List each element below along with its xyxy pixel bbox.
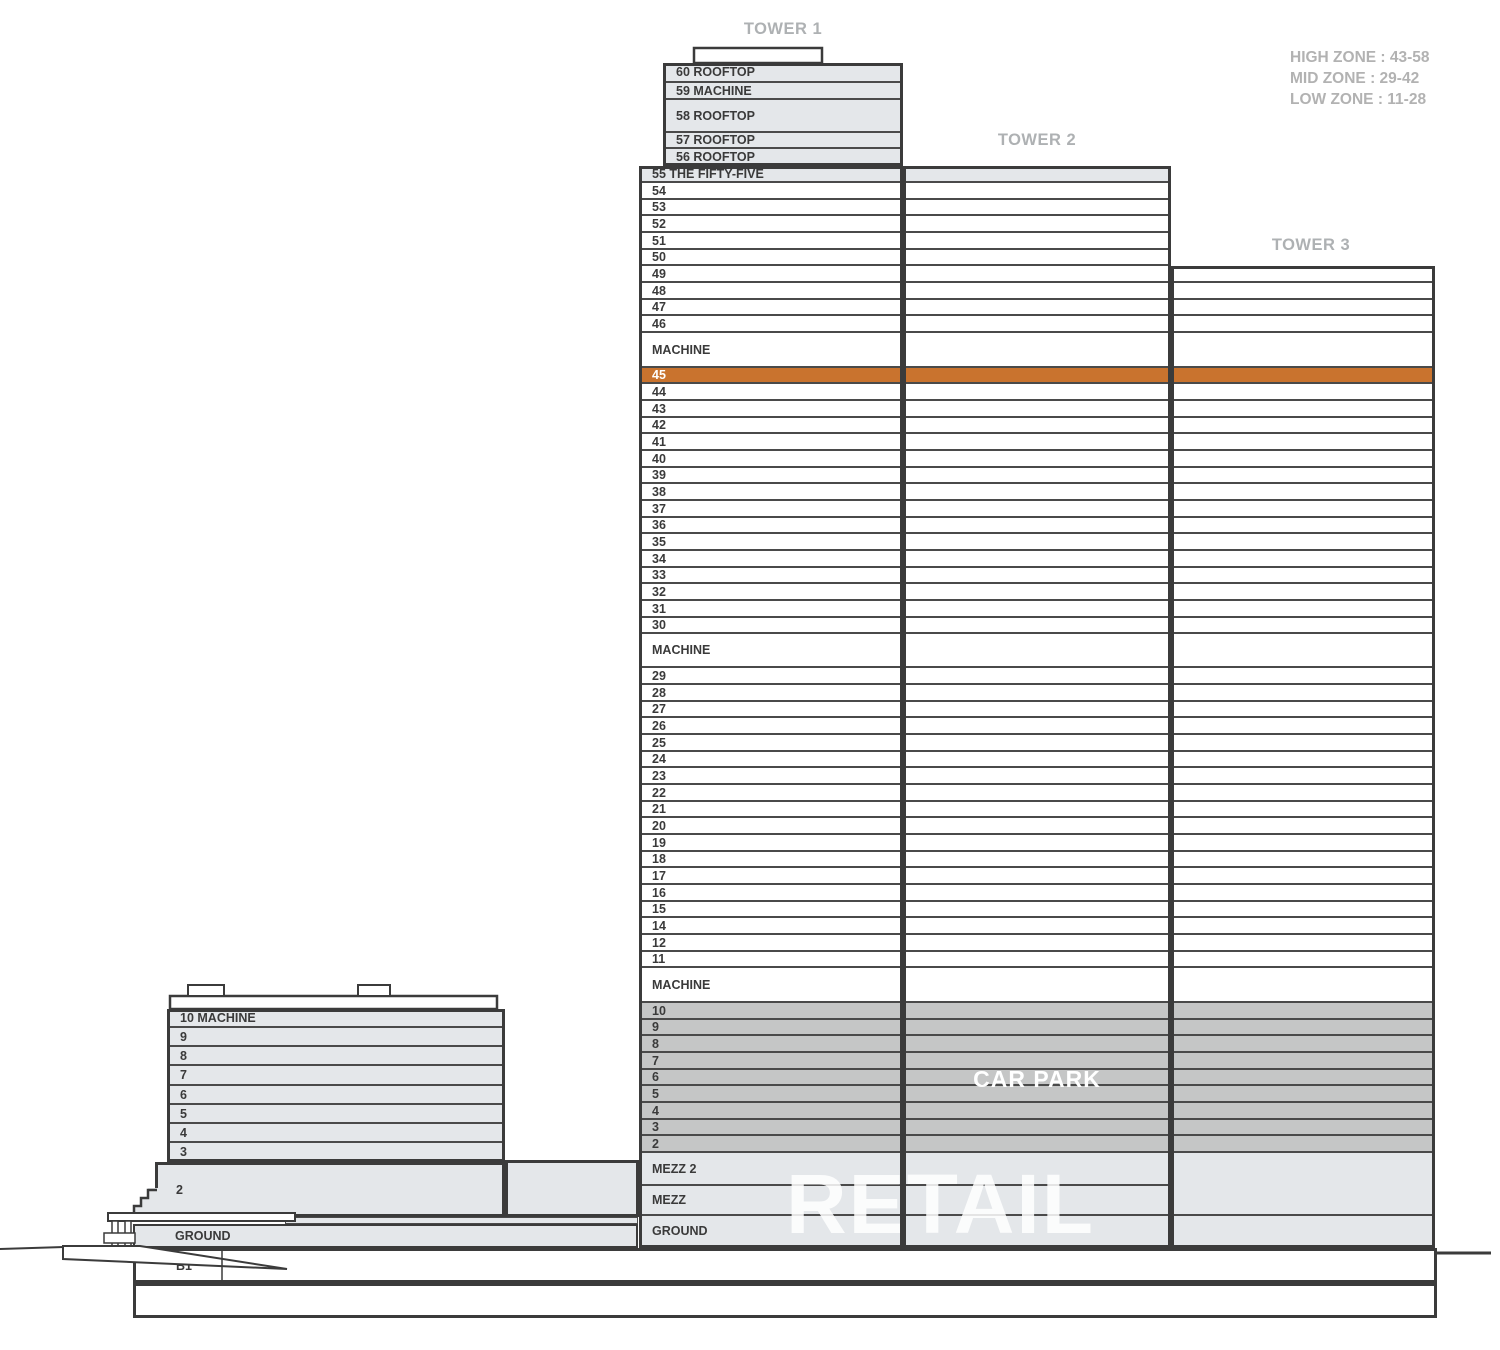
floor-cell-t1-15: 15 [639, 902, 903, 918]
floor-cell-t1-18: 18 [639, 852, 903, 868]
podium-cell-6: 6 [167, 1086, 505, 1105]
floor-label: 51 [639, 234, 666, 248]
floor-cell-t3-48 [1171, 283, 1435, 300]
floor-cell-t2-10 [903, 1003, 1171, 1020]
floor-label: 50 [639, 250, 666, 264]
floor-label: 25 [639, 736, 666, 750]
floor-label: 49 [639, 267, 666, 281]
floor-cell-t2-27 [903, 702, 1171, 718]
floor-cell-t3-24 [1171, 752, 1435, 768]
podium-cell-3: 3 [167, 1143, 505, 1162]
floor-label: 23 [639, 769, 666, 783]
floor-cell-t3-machine [1171, 968, 1435, 1003]
floor-cell-t3-25 [1171, 735, 1435, 752]
floor-label: 21 [639, 802, 666, 816]
floor-label: GROUND [639, 1224, 708, 1238]
floor-cell-t2-35 [903, 534, 1171, 551]
floor-cell-t3-14 [1171, 918, 1435, 935]
floor-cell-t1-21: 21 [639, 802, 903, 818]
floor-label: 3 [167, 1145, 187, 1159]
floor-cell-t3-31 [1171, 601, 1435, 618]
tower1-parapet [694, 48, 822, 63]
floor-label: 46 [639, 317, 666, 331]
floor-cell-t1-39: 39 [639, 468, 903, 484]
floor-label: 27 [639, 702, 666, 716]
floor-cell-t3-27 [1171, 702, 1435, 718]
floor-label: 47 [639, 300, 666, 314]
floor-cell-t2-34 [903, 551, 1171, 568]
floor-label: 14 [639, 919, 666, 933]
floor-cell-t2-46 [903, 316, 1171, 333]
floor-cell-t1-28: 28 [639, 685, 903, 702]
floor-cell-t1u-59-machine: 59 MACHINE [663, 83, 903, 100]
floor-cell-t1-45: 45 [639, 368, 903, 384]
floor-label: 5 [639, 1087, 659, 1101]
floor-cell-t2-37 [903, 501, 1171, 518]
floor-cell-t1-machine: MACHINE [639, 634, 903, 668]
floor-cell-t1-54: 54 [639, 183, 903, 200]
floor-cell-t1-26: 26 [639, 718, 903, 735]
floor-label: 24 [639, 752, 666, 766]
floor-label: 8 [639, 1037, 659, 1051]
floor-label: 40 [639, 452, 666, 466]
floor-cell-t3-16 [1171, 885, 1435, 902]
floor-label: 16 [639, 886, 666, 900]
floor-cell-t2-42 [903, 418, 1171, 434]
floor-cell-t3-2 [1171, 1136, 1435, 1153]
floor-label: 10 [639, 1004, 666, 1018]
floor-label: MACHINE [639, 978, 710, 992]
floor-cell-t3-40 [1171, 451, 1435, 468]
floor-cell-t2-25 [903, 735, 1171, 752]
floor-label: 17 [639, 869, 666, 883]
floor-cell-t1-40: 40 [639, 451, 903, 468]
floor-cell-t3-35 [1171, 534, 1435, 551]
floor-label: 4 [167, 1126, 187, 1140]
podium-cell-4: 4 [167, 1124, 505, 1143]
floor-cell-t2-15 [903, 902, 1171, 918]
floor-label: MACHINE [639, 643, 710, 657]
entrance-stair [104, 1233, 135, 1243]
podium-floor2-steps [134, 1190, 157, 1216]
floor-cell-t3-11 [1171, 952, 1435, 968]
floor-label: MACHINE [639, 343, 710, 357]
floor-cell-t1-52: 52 [639, 216, 903, 233]
floor-cell-t3-15 [1171, 902, 1435, 918]
floor-cell-t1-31: 31 [639, 601, 903, 618]
floor-label: 3 [639, 1120, 659, 1134]
floor-cell-t2-11 [903, 952, 1171, 968]
floor-cell-t2-48 [903, 283, 1171, 300]
floor-cell-t1-48: 48 [639, 283, 903, 300]
car-park-label: CAR PARK [903, 1066, 1171, 1086]
floor-cell-t1u-56-rooftop: 56 ROOFTOP [663, 149, 903, 166]
floor-cell-t2-44 [903, 384, 1171, 401]
floor-label: 28 [639, 686, 666, 700]
floor-cell-t2-55-the-fifty-five [903, 166, 1171, 183]
floor-cell-t2-29 [903, 668, 1171, 685]
podium-floor2: 2 [155, 1162, 505, 1217]
floor-cell-t2-49 [903, 266, 1171, 283]
legend-low-zone: LOW ZONE : 11-28 [1290, 89, 1430, 110]
floor-cell-t1-51: 51 [639, 233, 903, 250]
podium-slab-strip [285, 1217, 638, 1224]
floor-cell-t3-21 [1171, 802, 1435, 818]
floor-label: 26 [639, 719, 666, 733]
floor-cell-t2-39 [903, 468, 1171, 484]
floor-label: 53 [639, 200, 666, 214]
floor-cell-t3-45 [1171, 368, 1435, 384]
floor-cell-t3-18 [1171, 852, 1435, 868]
floor-label: 19 [639, 836, 666, 850]
floor-cell-t2-12 [903, 935, 1171, 952]
floor-cell-t2-38 [903, 484, 1171, 501]
floor-label: 42 [639, 418, 666, 432]
floor-cell-t3-49 [1171, 266, 1435, 283]
canopy-column-right [125, 1221, 131, 1248]
floor-label: 22 [639, 786, 666, 800]
floor-cell-t3-5 [1171, 1086, 1435, 1103]
floor-cell-t1u-57-rooftop: 57 ROOFTOP [663, 133, 903, 149]
floor-cell-t1-43: 43 [639, 401, 903, 418]
floor-cell-t1-33: 33 [639, 568, 903, 584]
floor-cell-t2-17 [903, 868, 1171, 885]
floor-cell-t2-41 [903, 434, 1171, 451]
floor-label: MEZZ 2 [639, 1162, 696, 1176]
floor-cell-t2-2 [903, 1136, 1171, 1153]
floor-cell-t1-16: 16 [639, 885, 903, 902]
floor-cell-t3-6 [1171, 1070, 1435, 1086]
floor-cell-t3-mezz-2 [1171, 1153, 1435, 1216]
floor-cell-t3-19 [1171, 835, 1435, 852]
floor-cell-t1-20: 20 [639, 818, 903, 835]
floor-cell-t3-8 [1171, 1036, 1435, 1053]
floor-cell-t2-24 [903, 752, 1171, 768]
floor-cell-t2-53 [903, 200, 1171, 216]
floor-label: 6 [167, 1088, 187, 1102]
floor-cell-t2-21 [903, 802, 1171, 818]
floor-cell-t2-28 [903, 685, 1171, 702]
floor-cell-t1-25: 25 [639, 735, 903, 752]
floor-cell-t2-47 [903, 300, 1171, 316]
floor-cell-t2-36 [903, 518, 1171, 534]
floor-label: 35 [639, 535, 666, 549]
floor-cell-t2-9 [903, 1020, 1171, 1036]
tower1-title: TOWER 1 [663, 20, 903, 39]
floor-label: 8 [167, 1049, 187, 1063]
floor-cell-t1-32: 32 [639, 584, 903, 601]
floor-cell-t1-27: 27 [639, 702, 903, 718]
floor-cell-t3-4 [1171, 1103, 1435, 1120]
floor-cell-t2-23 [903, 768, 1171, 785]
floor-label: 20 [639, 819, 666, 833]
floor-cell-t2-18 [903, 852, 1171, 868]
floor-label: 12 [639, 936, 666, 950]
floor-cell-t1-5: 5 [639, 1086, 903, 1103]
floor-cell-t3-9 [1171, 1020, 1435, 1036]
floor-cell-t3-33 [1171, 568, 1435, 584]
floor-cell-t1-19: 19 [639, 835, 903, 852]
floor-cell-t2-26 [903, 718, 1171, 735]
floor-cell-t2-31 [903, 601, 1171, 618]
floor-cell-t2-50 [903, 250, 1171, 266]
floor-cell-t2-51 [903, 233, 1171, 250]
podium-ground-label: GROUND [135, 1229, 231, 1243]
floor-label: 34 [639, 552, 666, 566]
floor-label: 18 [639, 852, 666, 866]
floor-cell-t3-10 [1171, 1003, 1435, 1020]
podium-floor2-label: 2 [158, 1183, 183, 1197]
floor-cell-t1-34: 34 [639, 551, 903, 568]
floor-cell-t3-30 [1171, 618, 1435, 634]
floor-cell-t2-52 [903, 216, 1171, 233]
floor-cell-t1-53: 53 [639, 200, 903, 216]
floor-label: 48 [639, 284, 666, 298]
floor-label: 9 [167, 1030, 187, 1044]
floor-cell-t1-22: 22 [639, 785, 903, 802]
floor-cell-t1-35: 35 [639, 534, 903, 551]
tower2-title: TOWER 2 [903, 131, 1171, 150]
floor-cell-t2-3 [903, 1120, 1171, 1136]
floor-cell-t3-34 [1171, 551, 1435, 568]
basement-b1: B1 [133, 1248, 1437, 1283]
floor-cell-t1-55-the-fifty-five: 55 THE FIFTY-FIVE [639, 166, 903, 183]
floor-label: 33 [639, 568, 666, 582]
floor-label: 41 [639, 435, 666, 449]
floor-label: 7 [167, 1068, 187, 1082]
floor-label: MEZZ [639, 1193, 686, 1207]
floor-cell-t1u-58-rooftop: 58 ROOFTOP [663, 100, 903, 133]
zone-legend: HIGH ZONE : 43-58 MID ZONE : 29-42 LOW Z… [1290, 47, 1430, 110]
floor-cell-t1-2: 2 [639, 1136, 903, 1153]
floor-cell-t2-8 [903, 1036, 1171, 1053]
floor-cell-t3-36 [1171, 518, 1435, 534]
floor-cell-t3-38 [1171, 484, 1435, 501]
floor-cell-t3-23 [1171, 768, 1435, 785]
basement-lower [133, 1283, 1437, 1318]
floor-label: 7 [639, 1054, 659, 1068]
floor-cell-t1-23: 23 [639, 768, 903, 785]
floor-label: 9 [639, 1020, 659, 1034]
floor-cell-t3-22 [1171, 785, 1435, 802]
floor-cell-t2-32 [903, 584, 1171, 601]
floor-cell-t2-43 [903, 401, 1171, 418]
podium-cell-7: 7 [167, 1066, 505, 1086]
floor-cell-t1u-60-rooftop: 60 ROOFTOP [663, 63, 903, 83]
floor-cell-t1-42: 42 [639, 418, 903, 434]
floor-label: 6 [639, 1070, 659, 1084]
floor-label: 52 [639, 217, 666, 231]
floor-cell-t1-8: 8 [639, 1036, 903, 1053]
floor-cell-t3-39 [1171, 468, 1435, 484]
floor-cell-t3-28 [1171, 685, 1435, 702]
floor-cell-t2-19 [903, 835, 1171, 852]
floor-cell-t2-16 [903, 885, 1171, 902]
floor-cell-t3-43 [1171, 401, 1435, 418]
podium-link-block [505, 1160, 639, 1217]
floor-cell-t1-14: 14 [639, 918, 903, 935]
floor-cell-t1-46: 46 [639, 316, 903, 333]
floor-cell-t1-47: 47 [639, 300, 903, 316]
floor-cell-t1-24: 24 [639, 752, 903, 768]
floor-cell-t2-20 [903, 818, 1171, 835]
floor-cell-t1-37: 37 [639, 501, 903, 518]
floor-label: 32 [639, 585, 666, 599]
floor-label: 39 [639, 468, 666, 482]
floor-cell-t2-45 [903, 368, 1171, 384]
tower3-title: TOWER 3 [1171, 236, 1451, 255]
floor-cell-t3-29 [1171, 668, 1435, 685]
floor-label: 29 [639, 669, 666, 683]
floor-cell-t3-41 [1171, 434, 1435, 451]
podium-roof-slab [170, 996, 497, 1009]
floor-cell-t1-30: 30 [639, 618, 903, 634]
podium-cell-5: 5 [167, 1105, 505, 1124]
floor-label: 2 [639, 1137, 659, 1151]
canopy-column-left [112, 1221, 118, 1248]
floor-cell-t1-29: 29 [639, 668, 903, 685]
floor-cell-t3-47 [1171, 300, 1435, 316]
floor-label: 37 [639, 502, 666, 516]
floor-cell-t1-41: 41 [639, 434, 903, 451]
floor-cell-t1-9: 9 [639, 1020, 903, 1036]
floor-label: 31 [639, 602, 666, 616]
podium-roof-stub-left [188, 985, 224, 996]
floor-label: 55 THE FIFTY-FIVE [639, 167, 764, 181]
floor-cell-t3-32 [1171, 584, 1435, 601]
floor-cell-t1-4: 4 [639, 1103, 903, 1120]
floor-cell-t3-3 [1171, 1120, 1435, 1136]
floor-cell-t1-10: 10 [639, 1003, 903, 1020]
podium-roof-stub-right [358, 985, 390, 996]
floor-cell-t2-machine [903, 968, 1171, 1003]
floor-cell-t1-3: 3 [639, 1120, 903, 1136]
floor-label: 54 [639, 184, 666, 198]
floor-cell-t3-machine [1171, 634, 1435, 668]
basement-b1-label: B1 [136, 1259, 192, 1273]
floor-cell-t1-44: 44 [639, 384, 903, 401]
floor-cell-t2-22 [903, 785, 1171, 802]
floor-label: 45 [639, 368, 666, 382]
floor-cell-t1-38: 38 [639, 484, 903, 501]
floor-label: 4 [639, 1104, 659, 1118]
floor-cell-t2-54 [903, 183, 1171, 200]
floor-label: 36 [639, 518, 666, 532]
floor-cell-t2-4 [903, 1103, 1171, 1120]
retail-zone-label: RETAIL [768, 1162, 1113, 1246]
floor-cell-t1-machine: MACHINE [639, 968, 903, 1003]
floor-cell-t1-49: 49 [639, 266, 903, 283]
floor-label: 44 [639, 385, 666, 399]
floor-cell-t1-7: 7 [639, 1053, 903, 1070]
floor-label: 60 ROOFTOP [663, 65, 755, 79]
floor-cell-t3-42 [1171, 418, 1435, 434]
podium-ground: GROUND [133, 1224, 638, 1248]
elevation-diagram: TOWER 1 TOWER 2 TOWER 3 HIGH ZONE : 43-5… [0, 0, 1500, 1350]
floor-cell-t2-30 [903, 618, 1171, 634]
floor-cell-t3-17 [1171, 868, 1435, 885]
podium-cell-10-machine: 10 MACHINE [167, 1009, 505, 1028]
floor-cell-t1-6: 6 [639, 1070, 903, 1086]
floor-cell-t3-46 [1171, 316, 1435, 333]
floor-label: 15 [639, 902, 666, 916]
legend-high-zone: HIGH ZONE : 43-58 [1290, 47, 1430, 68]
floor-cell-t1-11: 11 [639, 952, 903, 968]
floor-label: 43 [639, 402, 666, 416]
floor-cell-t1-50: 50 [639, 250, 903, 266]
floor-label: 10 MACHINE [167, 1011, 256, 1025]
ground-line-left [0, 1247, 64, 1249]
floor-cell-t3-26 [1171, 718, 1435, 735]
floor-cell-t2-machine [903, 634, 1171, 668]
floor-cell-t3-12 [1171, 935, 1435, 952]
floor-cell-t2-40 [903, 451, 1171, 468]
floor-cell-t3-44 [1171, 384, 1435, 401]
floor-label: 38 [639, 485, 666, 499]
floor-label: 11 [639, 952, 665, 966]
floor-cell-t3-20 [1171, 818, 1435, 835]
floor-label: 59 MACHINE [663, 84, 752, 98]
floor-cell-t3-ground [1171, 1216, 1435, 1248]
floor-cell-t3-37 [1171, 501, 1435, 518]
floor-cell-t2-14 [903, 918, 1171, 935]
floor-cell-t1-17: 17 [639, 868, 903, 885]
legend-mid-zone: MID ZONE : 29-42 [1290, 68, 1430, 89]
floor-cell-t3-7 [1171, 1053, 1435, 1070]
floor-label: 30 [639, 618, 666, 632]
floor-cell-t2-machine [903, 333, 1171, 368]
floor-cell-t1-36: 36 [639, 518, 903, 534]
floor-label: 57 ROOFTOP [663, 133, 755, 147]
podium-cell-9: 9 [167, 1028, 505, 1047]
floor-label: 5 [167, 1107, 187, 1121]
floor-cell-t2-33 [903, 568, 1171, 584]
floor-cell-t3-machine [1171, 333, 1435, 368]
floor-label: 56 ROOFTOP [663, 150, 755, 164]
floor-cell-t1-machine: MACHINE [639, 333, 903, 368]
podium-cell-8: 8 [167, 1047, 505, 1066]
floor-cell-t1-12: 12 [639, 935, 903, 952]
floor-label: 58 ROOFTOP [663, 109, 755, 123]
